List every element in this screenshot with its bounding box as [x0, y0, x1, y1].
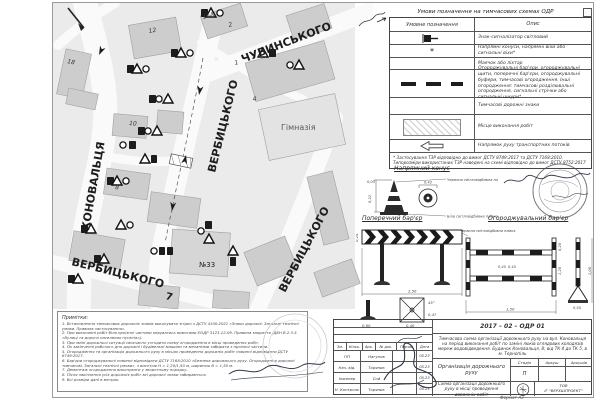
- site-plan-map: КОНОВАЛЬЦЯ ЧУБИНСЬКОГО ВЕРБИЦЬКОГО ВЕРБИ…: [53, 3, 373, 309]
- person-role: Нач. від.: [334, 361, 360, 372]
- margin-handwriting: [357, 8, 387, 34]
- col-header: Кільк.: [346, 342, 362, 350]
- legend-col-desc: Опис: [475, 18, 591, 31]
- dim-label: 45°: [428, 300, 435, 305]
- legend-col-symbol: Умовне позначення: [390, 18, 475, 31]
- stage-header: Стадія: [510, 358, 538, 366]
- legend-table: Умови позначення на тимчасових схемах ОД…: [389, 7, 592, 169]
- fencing-barrier-drawing: Червона світловідбивна плівка 1,50 0,45 …: [458, 224, 594, 328]
- dim-label: 0,20: [558, 242, 562, 251]
- legend-desc: Напрямні конуси, напрямні віхи або сигна…: [475, 45, 591, 57]
- notes-stamp-and-signature: [225, 312, 330, 394]
- stage-value: П: [510, 366, 538, 381]
- round-stamp: [498, 153, 594, 223]
- barrier-line-symbol: [401, 82, 463, 86]
- dim-label: 0,47: [428, 312, 437, 317]
- doc-number: 2017 – 02 – ОДР 01: [432, 320, 592, 333]
- dim-label: 1,20: [558, 266, 562, 275]
- stage-header: Аркуш: [538, 358, 565, 366]
- house-number: 12: [148, 27, 157, 35]
- dim-label: 0,42: [424, 181, 433, 185]
- company-logo: [514, 383, 532, 396]
- legend-desc: Напрямок руху транспортних потоків: [475, 140, 591, 152]
- transverse-barrier-title: Поперечний бар'єр: [362, 215, 422, 222]
- dim-label: 1,00: [588, 266, 592, 275]
- dim-label: 2,50: [408, 289, 417, 294]
- house-number: 10: [129, 120, 137, 128]
- legend-desc: Місце виконання робіт: [475, 115, 591, 139]
- dim-label: 0,45: [498, 265, 507, 269]
- light-signal-icon: [422, 34, 442, 43]
- traffic-scheme-sheet: { "sheet": { "format_label": "Формат А3"…: [0, 0, 600, 400]
- film-label: Червона світловідбивна плівка: [460, 229, 515, 233]
- dim-label: 0,45: [508, 265, 517, 269]
- person-role: Н. Контроль: [334, 383, 360, 394]
- building-label-33: №33: [199, 261, 215, 269]
- dim-label: 0,32: [368, 194, 372, 203]
- stage-header: Аркушів: [565, 358, 592, 366]
- titleblock-signatures: [378, 330, 444, 394]
- legend-title: Умови позначення на тимчасових схемах ОД…: [389, 7, 592, 17]
- work-area-symbol: [403, 119, 461, 136]
- person-role: ГІП: [334, 350, 360, 361]
- company-name: ТОВ ІГ "ВЕРХШПРОЕКТ": [534, 381, 592, 396]
- fencing-barrier-title: Огороджувальний бар'єр: [488, 215, 568, 222]
- cone-drawing-title: Напрямний конус: [394, 165, 450, 172]
- legend-desc: Знак-сигналізатор світловий: [475, 32, 591, 44]
- flow-arrow-icon: [419, 140, 445, 152]
- legend-corner-box: [583, 8, 592, 17]
- dim-label: 1,50: [506, 307, 515, 312]
- building-label-himnaziia: Гімназія: [281, 123, 316, 132]
- doc-description: Тимчасова схема організації дорожнього р…: [432, 333, 592, 358]
- dim-label: 0,25: [356, 233, 359, 242]
- dim-label: 0,50: [573, 306, 582, 310]
- legend-desc: Огороджувальні бар'єри, огороджувальні щ…: [475, 70, 591, 97]
- col-header: Зм.: [334, 342, 346, 350]
- cone-red-film-label: Червона світловідбивна плівка: [447, 178, 498, 182]
- format-label: Формат А3: [500, 395, 524, 400]
- title-block: Зм. Кільк. Арк. № док. Підпис Дата ГІП Н…: [333, 319, 592, 395]
- col-header: Арк.: [362, 342, 375, 350]
- cone-symbol: *: [430, 47, 434, 56]
- transverse-barrier-drawing: 2,50 0,25 0,60 0,40 45° 0,47: [356, 224, 468, 328]
- legend-desc: Тимчасові дорожні знаки: [475, 98, 591, 114]
- person-role: Інженер: [334, 372, 360, 383]
- dim-label: 0,05: [367, 180, 376, 184]
